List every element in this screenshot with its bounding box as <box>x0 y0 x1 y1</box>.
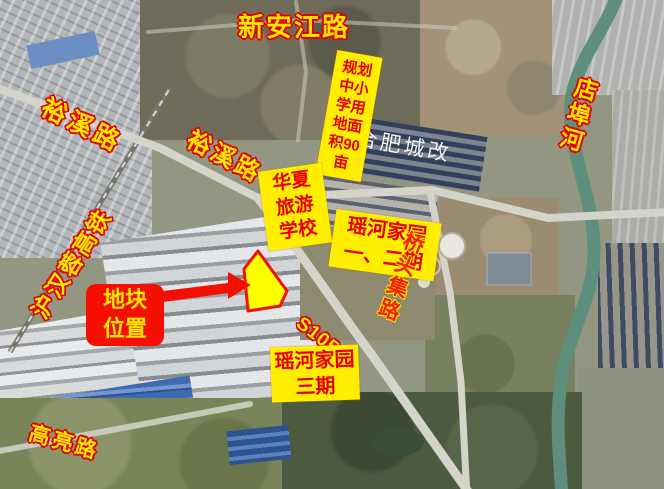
dianbu-river-water <box>558 0 618 489</box>
plot-location-line: 地块 <box>86 286 164 315</box>
yaohe-phase-3-line: 瑶河家园 <box>270 346 359 375</box>
label-box-huaxia-school: 华夏 旅游 学校 <box>258 163 333 251</box>
plot-callout-arrow <box>163 272 251 302</box>
satellite-location-map: 合肥城改 新安江路 裕溪路 裕溪路 规划 中小 学用 地面 积90 亩 店埠河 … <box>0 0 664 489</box>
land-plot-polygon <box>244 251 287 311</box>
label-box-yaohe-phase-3: 瑶河家园 三期 <box>270 344 360 402</box>
label-box-plot-location: 地块 位置 <box>86 284 164 346</box>
yaohe-phase-3-line: 三期 <box>271 372 360 401</box>
basin-building <box>487 253 531 285</box>
label-xinanjiang-road: 新安江路 <box>238 7 350 44</box>
pond <box>372 428 424 456</box>
stadium-building <box>439 233 465 259</box>
plot-location-line: 位置 <box>86 315 164 344</box>
